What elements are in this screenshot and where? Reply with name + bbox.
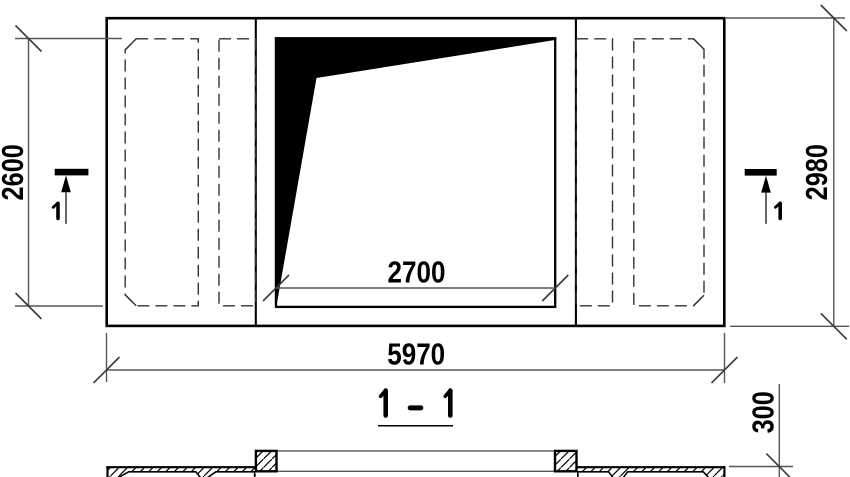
svg-text:2700: 2700 [388,255,446,290]
svg-text:2600: 2600 [0,144,30,200]
svg-text:5970: 5970 [387,338,445,373]
svg-text:2980: 2980 [800,144,834,200]
svg-text:300: 300 [746,391,780,433]
